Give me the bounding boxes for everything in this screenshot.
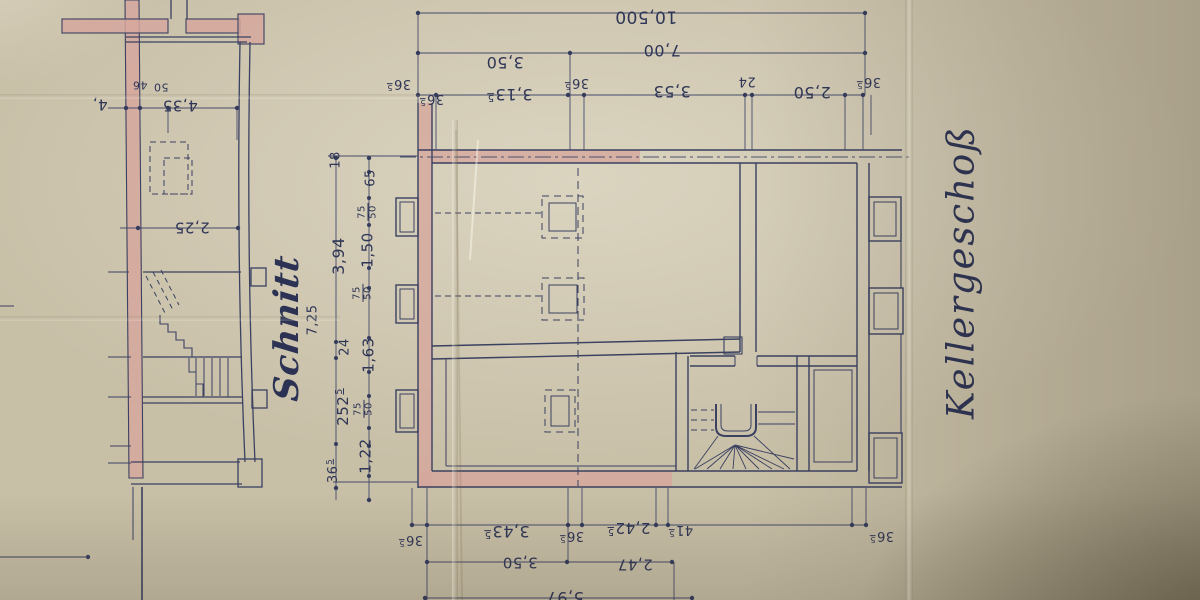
dim-left-75-50-c: 7550 bbox=[354, 400, 375, 418]
dim-left-1-50: 1,50 bbox=[361, 232, 376, 267]
dim-top-3-53: 3,53 bbox=[653, 83, 691, 99]
dim-left-75-50-a: 7550 bbox=[358, 203, 379, 221]
dim-top-36-5-a: 365 bbox=[387, 77, 411, 91]
dim-left-7-25: 7,25 bbox=[307, 305, 320, 336]
blueprint-photo: Schnitt Kellergeschoß 10,5007,003,503653… bbox=[0, 0, 1200, 600]
dim-left-1-63: 1,63 bbox=[362, 337, 377, 372]
dim-bot-3-50: 3,50 bbox=[502, 555, 537, 570]
dim-sec-2-25: 2,25 bbox=[174, 220, 209, 235]
dim-top-total: 10,500 bbox=[615, 8, 677, 25]
dim-top-7-00: 7,00 bbox=[643, 42, 681, 58]
dim-bot-5-97: 5,97 bbox=[546, 589, 584, 600]
dim-sec-partial-4: 4, bbox=[92, 97, 107, 112]
dim-sec-46: 46 bbox=[133, 80, 148, 91]
dim-bot-36-5-c: 365 bbox=[870, 529, 894, 543]
dim-top-36-5-c: 365 bbox=[565, 76, 589, 90]
dim-top-36-5-d: 365 bbox=[857, 75, 881, 89]
dim-left-252-5: 2525 bbox=[335, 388, 351, 426]
dim-sec-4-35: 4,35 bbox=[162, 98, 197, 113]
dim-top-24: 24 bbox=[738, 75, 756, 88]
dim-bot-2-42-5: 2,425 bbox=[608, 520, 651, 536]
dim-sec-50: 50 bbox=[154, 82, 169, 93]
plan-drawing bbox=[396, 103, 910, 488]
dim-bot-36-5-a: 365 bbox=[399, 533, 423, 547]
section-title: Schnitt bbox=[267, 253, 307, 403]
drawing-svg bbox=[0, 0, 1200, 600]
dim-left-3-94: 3,94 bbox=[331, 237, 347, 275]
dim-left-24: 24 bbox=[339, 338, 352, 356]
dim-top-3-13-5: 3,135 bbox=[487, 86, 532, 102]
plan-title: Kellergeschoß bbox=[940, 125, 983, 419]
dim-left-65: 65 bbox=[365, 169, 378, 187]
dim-bot-2-47: 2,47 bbox=[617, 557, 652, 572]
dim-bot-3-43-5: 3,435 bbox=[484, 523, 529, 539]
dim-left-1-22: 1,22 bbox=[359, 438, 374, 473]
dim-left-75-50-b: 7550 bbox=[353, 284, 374, 302]
dim-bot-41-5: 415 bbox=[669, 523, 693, 537]
paper-crease-lines bbox=[456, 130, 478, 600]
dim-top-2-50: 2,50 bbox=[793, 84, 831, 100]
dim-top-3-50: 3,50 bbox=[486, 54, 524, 70]
dim-left-36-5: 365 bbox=[326, 459, 340, 483]
dim-bot-36-5-b: 365 bbox=[560, 529, 584, 543]
dim-top-36-5-b: 365 bbox=[420, 92, 444, 106]
dim-left-18: 18 bbox=[330, 151, 343, 169]
